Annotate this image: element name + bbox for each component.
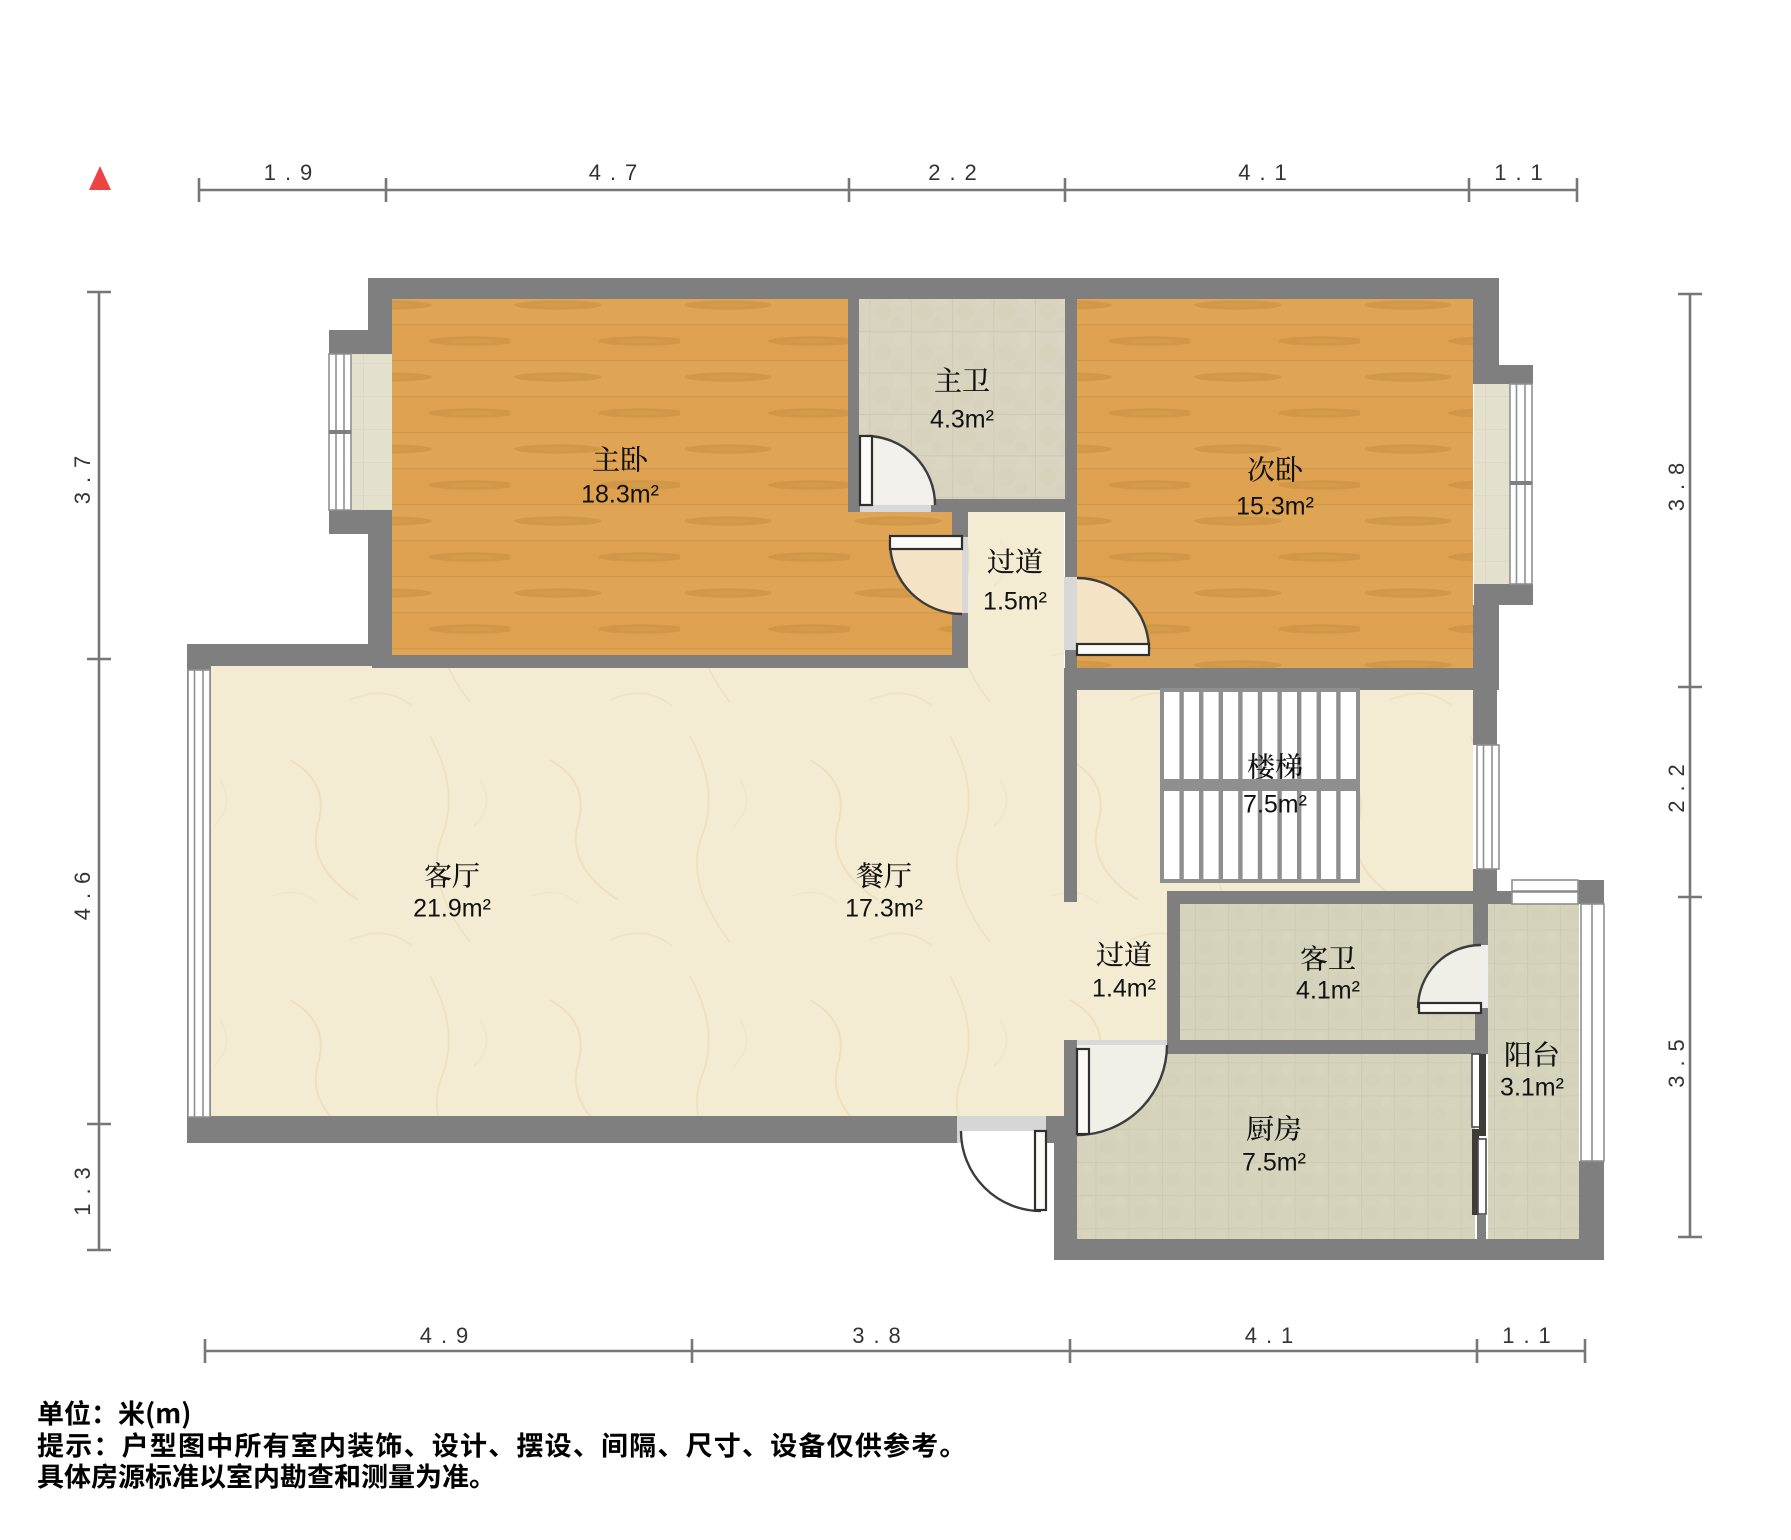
svg-text:2.2: 2.2 xyxy=(928,160,986,185)
svg-text:15.3m²: 15.3m² xyxy=(1236,493,1314,521)
svg-text:4.7: 4.7 xyxy=(589,160,647,185)
svg-text:4.6: 4.6 xyxy=(70,863,95,921)
svg-text:4.1: 4.1 xyxy=(1238,160,1296,185)
svg-text:18.3m²: 18.3m² xyxy=(581,481,659,509)
svg-text:7.5m²: 7.5m² xyxy=(1243,791,1307,819)
svg-text:1.5m²: 1.5m² xyxy=(983,588,1047,616)
svg-text:4.9: 4.9 xyxy=(420,1323,478,1348)
svg-text:4.1m²: 4.1m² xyxy=(1296,977,1360,1005)
svg-text:3.8: 3.8 xyxy=(1664,454,1689,512)
svg-text:1.3: 1.3 xyxy=(70,1158,95,1216)
svg-text:3.7: 3.7 xyxy=(70,447,95,505)
svg-text:21.9m²: 21.9m² xyxy=(413,895,491,923)
svg-text:4.3m²: 4.3m² xyxy=(930,406,994,434)
svg-text:1.1: 1.1 xyxy=(1502,1323,1560,1348)
svg-text:1.1: 1.1 xyxy=(1494,160,1552,185)
svg-text:3.8: 3.8 xyxy=(852,1323,910,1348)
svg-text:17.3m²: 17.3m² xyxy=(845,895,923,923)
svg-text:1.9: 1.9 xyxy=(264,160,322,185)
svg-text:7.5m²: 7.5m² xyxy=(1242,1149,1306,1177)
svg-text:1.4m²: 1.4m² xyxy=(1092,975,1156,1003)
svg-text:3.5: 3.5 xyxy=(1664,1030,1689,1088)
svg-text:3.1m²: 3.1m² xyxy=(1500,1074,1564,1102)
svg-text:2.2: 2.2 xyxy=(1664,755,1689,813)
svg-text:4.1: 4.1 xyxy=(1245,1323,1303,1348)
